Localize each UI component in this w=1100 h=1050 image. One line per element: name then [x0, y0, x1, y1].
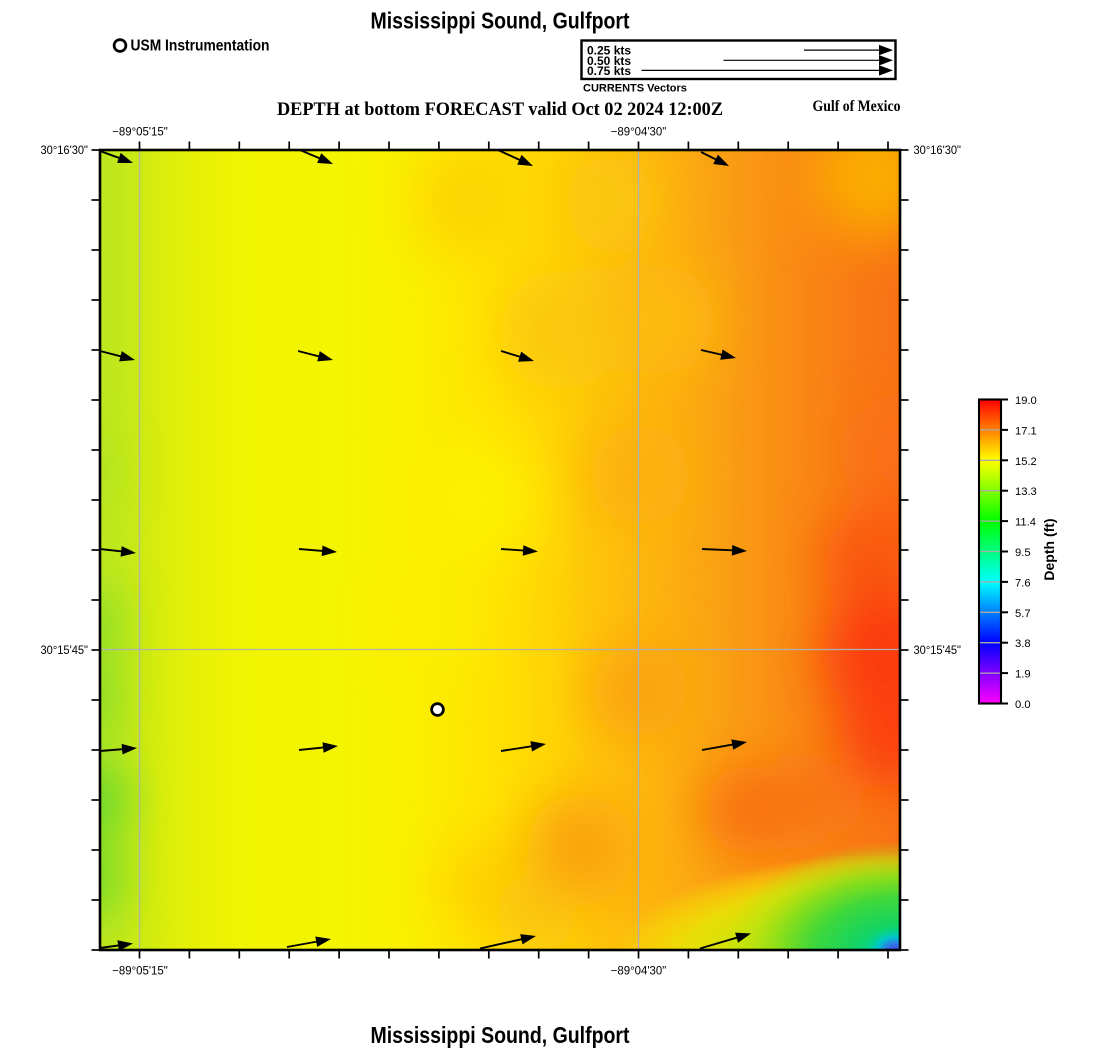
svg-text:30°16'30": 30°16'30" — [914, 144, 962, 157]
svg-text:30°15'45": 30°15'45" — [914, 644, 962, 657]
svg-text:DEPTH at bottom FORECAST valid: DEPTH at bottom FORECAST valid Oct 02 20… — [277, 99, 723, 120]
svg-text:−89°05'15": −89°05'15" — [112, 126, 168, 139]
svg-text:−89°04'30": −89°04'30" — [611, 126, 667, 139]
svg-text:30°15'45": 30°15'45" — [41, 644, 89, 657]
svg-text:13.3: 13.3 — [1015, 486, 1037, 498]
svg-text:7.6: 7.6 — [1015, 577, 1031, 589]
svg-text:CURRENTS Vectors: CURRENTS Vectors — [583, 83, 687, 95]
svg-text:15.2: 15.2 — [1015, 456, 1037, 468]
svg-text:5.7: 5.7 — [1015, 608, 1031, 620]
svg-text:−89°05'15": −89°05'15" — [112, 965, 168, 978]
svg-text:Mississippi Sound, Gulfport: Mississippi Sound, Gulfport — [371, 1022, 630, 1048]
svg-text:9.5: 9.5 — [1015, 547, 1031, 559]
svg-text:−89°04'30": −89°04'30" — [611, 965, 667, 978]
svg-text:0.75 kts: 0.75 kts — [587, 64, 631, 78]
svg-text:1.9: 1.9 — [1015, 669, 1031, 681]
svg-text:Depth (ft): Depth (ft) — [1041, 518, 1057, 580]
svg-text:Mississippi Sound, Gulfport: Mississippi Sound, Gulfport — [371, 8, 630, 34]
svg-text:11.4: 11.4 — [1015, 517, 1036, 529]
svg-text:17.1: 17.1 — [1015, 425, 1037, 437]
svg-text:0.0: 0.0 — [1015, 699, 1031, 711]
svg-text:3.8: 3.8 — [1015, 638, 1031, 650]
svg-text:USM Instrumentation: USM Instrumentation — [131, 38, 270, 55]
svg-text:30°16'30": 30°16'30" — [41, 144, 89, 157]
svg-text:Gulf of Mexico: Gulf of Mexico — [813, 98, 901, 115]
svg-text:19.0: 19.0 — [1015, 395, 1037, 407]
